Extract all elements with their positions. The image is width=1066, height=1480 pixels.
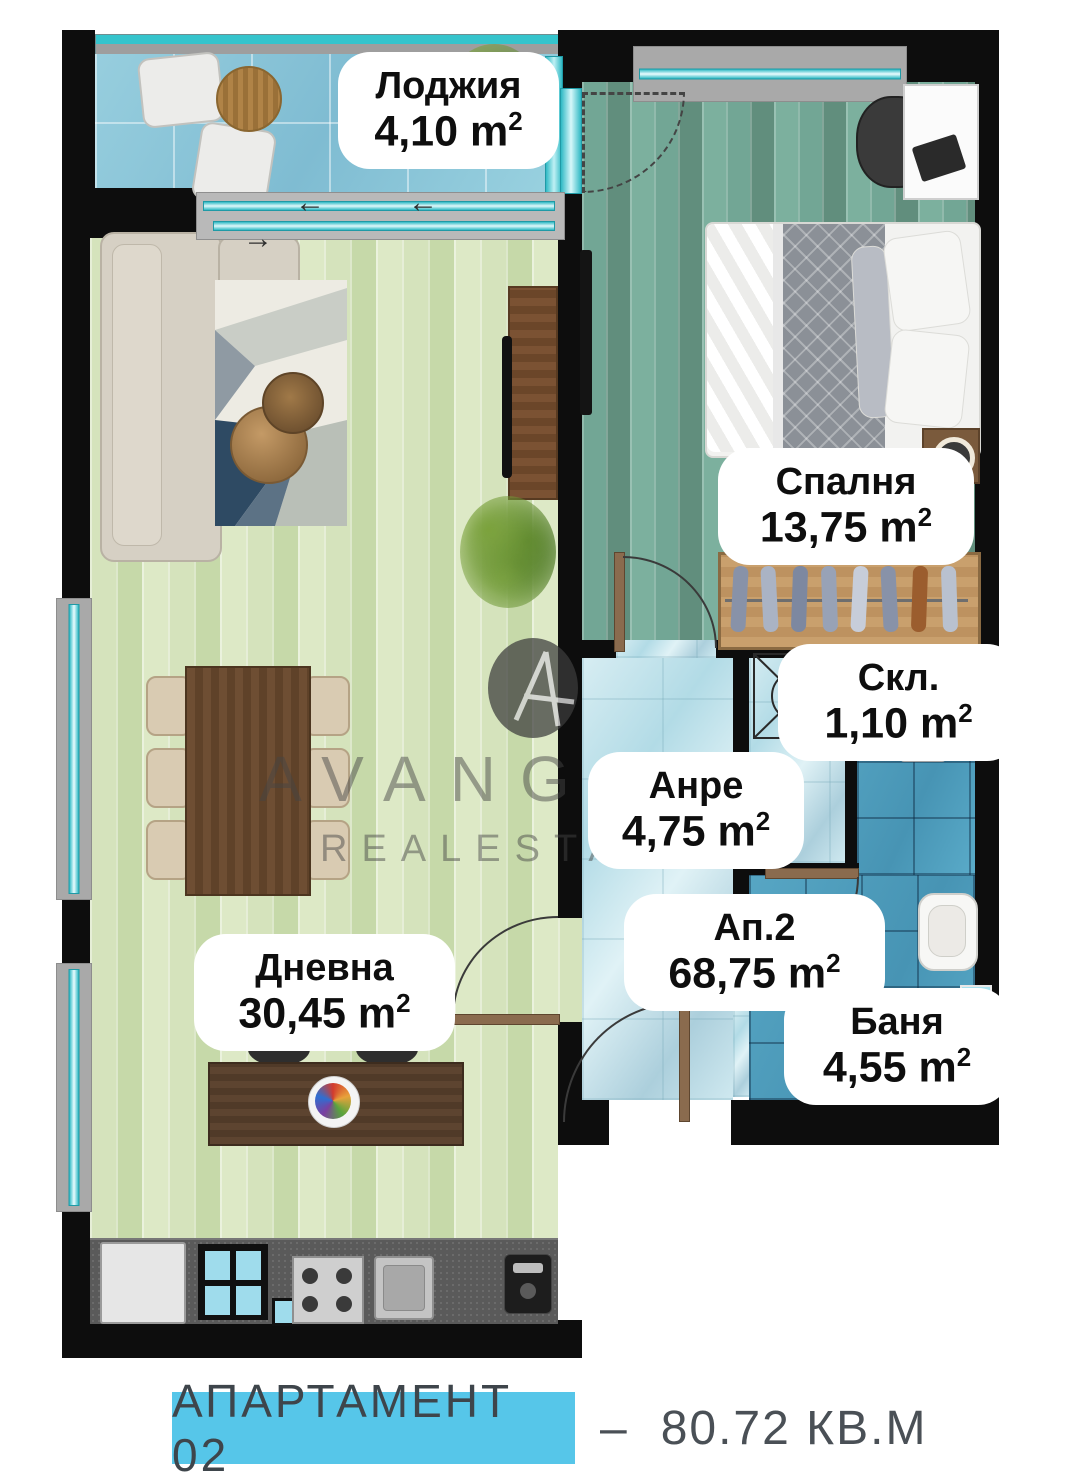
- bathroom-sink: [918, 893, 978, 971]
- apartment-area: 68,75 m2: [642, 949, 867, 997]
- coffee-machine-top: [513, 1263, 543, 1273]
- bedroom-tv: [580, 250, 592, 415]
- window-living-left-upper: [56, 598, 92, 900]
- fruit-bowl-contents: [315, 1083, 351, 1119]
- room-area: 30,45 m2: [212, 989, 437, 1037]
- tv-cabinet: [508, 286, 558, 500]
- bed-pillow: [883, 328, 970, 430]
- hob-burner: [302, 1296, 318, 1312]
- window-glass: [69, 969, 80, 1206]
- area-unit-sup: 2: [508, 106, 522, 136]
- floor-plan-canvas: ← ← →: [0, 0, 1066, 1480]
- room-name: Спалня: [736, 462, 956, 503]
- window-glass: [639, 69, 901, 80]
- room-label-hall: Анре 4,75 m2: [592, 756, 800, 865]
- room-label-living: Дневна 30,45 m2: [198, 938, 451, 1047]
- area-unit-sup: 2: [918, 502, 932, 532]
- apartment-name: Ап.2: [642, 908, 867, 949]
- cabinet-pane: [236, 1251, 261, 1280]
- area-value: 4,75: [622, 807, 706, 855]
- bathroom-door-gap: [733, 1007, 749, 1097]
- fruit-bowl: [308, 1076, 360, 1128]
- slide-arrow-left-icon: ←: [408, 186, 438, 220]
- coffee-machine: [504, 1254, 552, 1314]
- room-name: Скл.: [796, 658, 1001, 699]
- hanging-clothes: [791, 566, 808, 632]
- coffee-table-small: [262, 372, 324, 434]
- area-unit: m: [717, 807, 755, 855]
- slide-arrow-right-icon: →: [243, 222, 273, 256]
- area-value: 13,75: [760, 503, 868, 551]
- fridge: [100, 1242, 186, 1324]
- cabinet-pane: [205, 1251, 230, 1280]
- wall-loggia-left: [62, 30, 95, 196]
- area-unit-sup: 2: [396, 988, 410, 1018]
- living-tv: [502, 336, 512, 478]
- room-label-bedroom: Спалня 13,75 m2: [722, 452, 970, 561]
- loggia-armchair: [137, 51, 226, 129]
- hanging-clothes: [911, 566, 928, 632]
- area-unit: m: [920, 699, 958, 747]
- area-value: 68,75: [668, 949, 776, 997]
- area-unit: m: [918, 1043, 956, 1091]
- room-area: 1,10 m2: [796, 699, 1001, 747]
- area-unit: m: [879, 503, 917, 551]
- room-label-apartment: Ап.2 68,75 m2: [628, 898, 881, 1007]
- room-name: Анре: [606, 766, 786, 807]
- room-area: 4,55 m2: [802, 1043, 992, 1091]
- room-name: Дневна: [212, 948, 437, 989]
- living-door-gap: [558, 918, 582, 1022]
- room-label-loggia: Лоджия 4,10 m2: [342, 56, 555, 165]
- area-value: 4,10: [374, 107, 458, 155]
- area-unit-sup: 2: [756, 806, 770, 836]
- window-living-left-lower: [56, 963, 92, 1212]
- living-plant: [460, 496, 556, 608]
- coffee-machine-dial: [520, 1283, 536, 1299]
- kitchen-cabinet: [198, 1244, 268, 1320]
- area-unit: m: [788, 949, 826, 997]
- slide-arrow-left-icon: ←: [295, 186, 325, 220]
- area-unit: m: [470, 107, 508, 155]
- area-value: 30,45: [238, 989, 346, 1037]
- hob-burner: [302, 1268, 318, 1284]
- footer-dash: –: [600, 1401, 627, 1456]
- avangard-logo-icon: [486, 636, 580, 740]
- cabinet-pane: [236, 1286, 261, 1315]
- cabinet-pane: [205, 1286, 230, 1315]
- footer-title-bar: АПАРТАМЕНТ 02: [172, 1392, 575, 1464]
- hob-burner: [336, 1296, 352, 1312]
- gas-hob: [292, 1256, 364, 1324]
- hanging-clothes: [941, 566, 958, 632]
- wall-living-bottom: [62, 1320, 582, 1358]
- area-value: 4,55: [823, 1043, 907, 1091]
- kitchen-sink: [374, 1256, 434, 1320]
- hanging-clothes: [821, 566, 838, 632]
- sink-bowl: [928, 905, 966, 957]
- bed-sheet: [707, 224, 773, 452]
- room-name: Баня: [802, 1002, 992, 1043]
- bed-blanket-trim: [773, 224, 783, 452]
- room-area: 4,10 m2: [356, 107, 541, 155]
- hob-burner: [336, 1268, 352, 1284]
- room-area: 13,75 m2: [736, 503, 956, 551]
- area-value: 1,10: [824, 699, 908, 747]
- sliding-rail-top: [203, 201, 555, 211]
- area-unit-sup: 2: [826, 948, 840, 978]
- loggia-round-table: [216, 66, 282, 132]
- wall-loggia-bottom: [62, 188, 196, 238]
- bed-pillow: [882, 229, 972, 333]
- room-name: Лоджия: [356, 66, 541, 107]
- sink-basin: [383, 1265, 425, 1311]
- area-unit-sup: 2: [958, 698, 972, 728]
- sofa-cushion: [112, 244, 162, 546]
- room-label-storage: Скл. 1,10 m2: [782, 648, 1015, 757]
- area-unit: m: [358, 989, 396, 1037]
- area-unit-sup: 2: [957, 1042, 971, 1072]
- bedroom-balcony-door-glass: [560, 88, 582, 194]
- footer-total-area: 80.72 КВ.М: [661, 1401, 928, 1456]
- footer-apartment-title: АПАРТАМЕНТ 02: [172, 1374, 575, 1480]
- window-glass: [69, 604, 80, 894]
- footer-area-text: – 80.72 КВ.М: [600, 1392, 927, 1464]
- room-area: 4,75 m2: [606, 807, 786, 855]
- room-label-bath: Баня 4,55 m2: [788, 992, 1006, 1101]
